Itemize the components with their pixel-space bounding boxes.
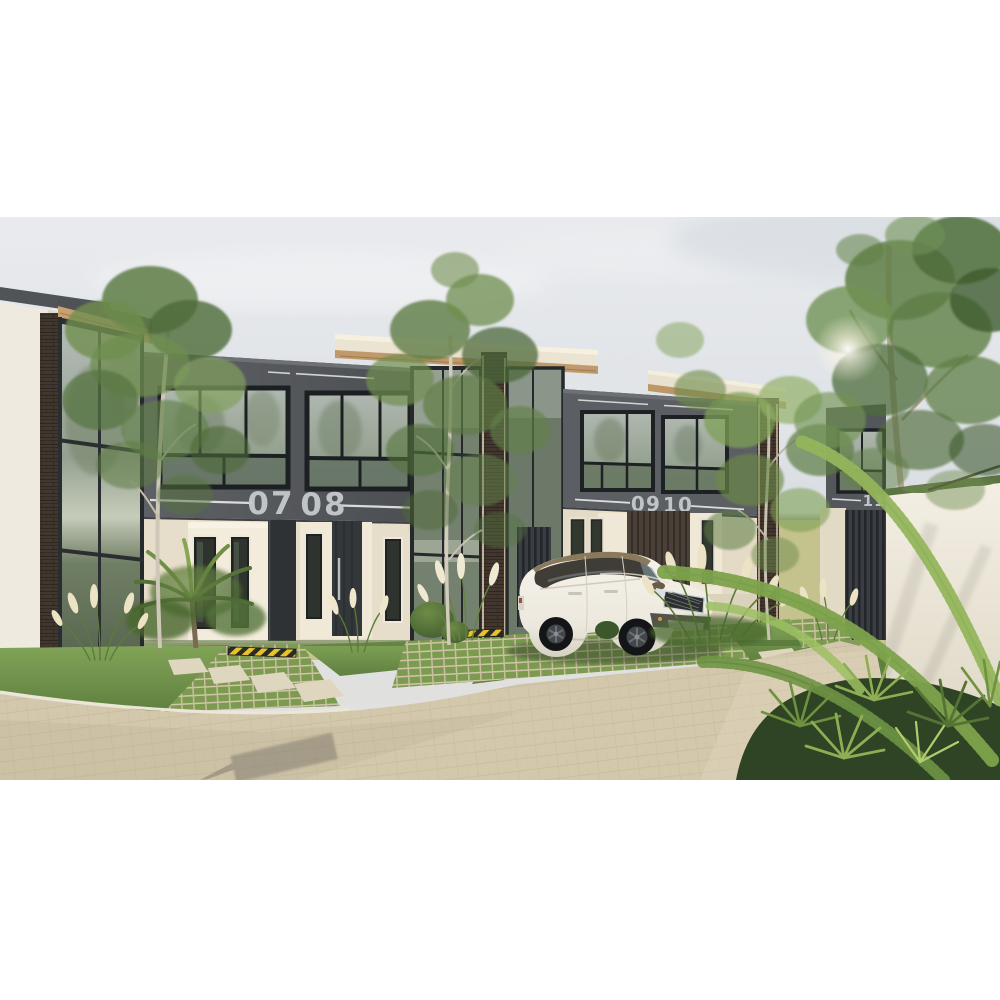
door-08	[332, 521, 362, 636]
car-wheel-rear	[539, 617, 573, 651]
render-svg: 07 08	[0, 217, 1000, 780]
unit-number-08: 08	[300, 487, 347, 523]
window-08-narrow	[304, 532, 324, 621]
window-08b-narrow	[383, 537, 403, 623]
unit-number-07: 07	[247, 486, 294, 522]
door-07	[268, 520, 296, 641]
sun-glow	[814, 315, 882, 383]
render-image: 07 08	[0, 0, 1000, 1000]
window-09	[582, 412, 653, 490]
slat-fence-11	[845, 510, 886, 640]
car-wheel-front	[619, 619, 656, 656]
brick-column-left	[40, 313, 58, 651]
render-scene: 07 08	[0, 217, 1000, 780]
